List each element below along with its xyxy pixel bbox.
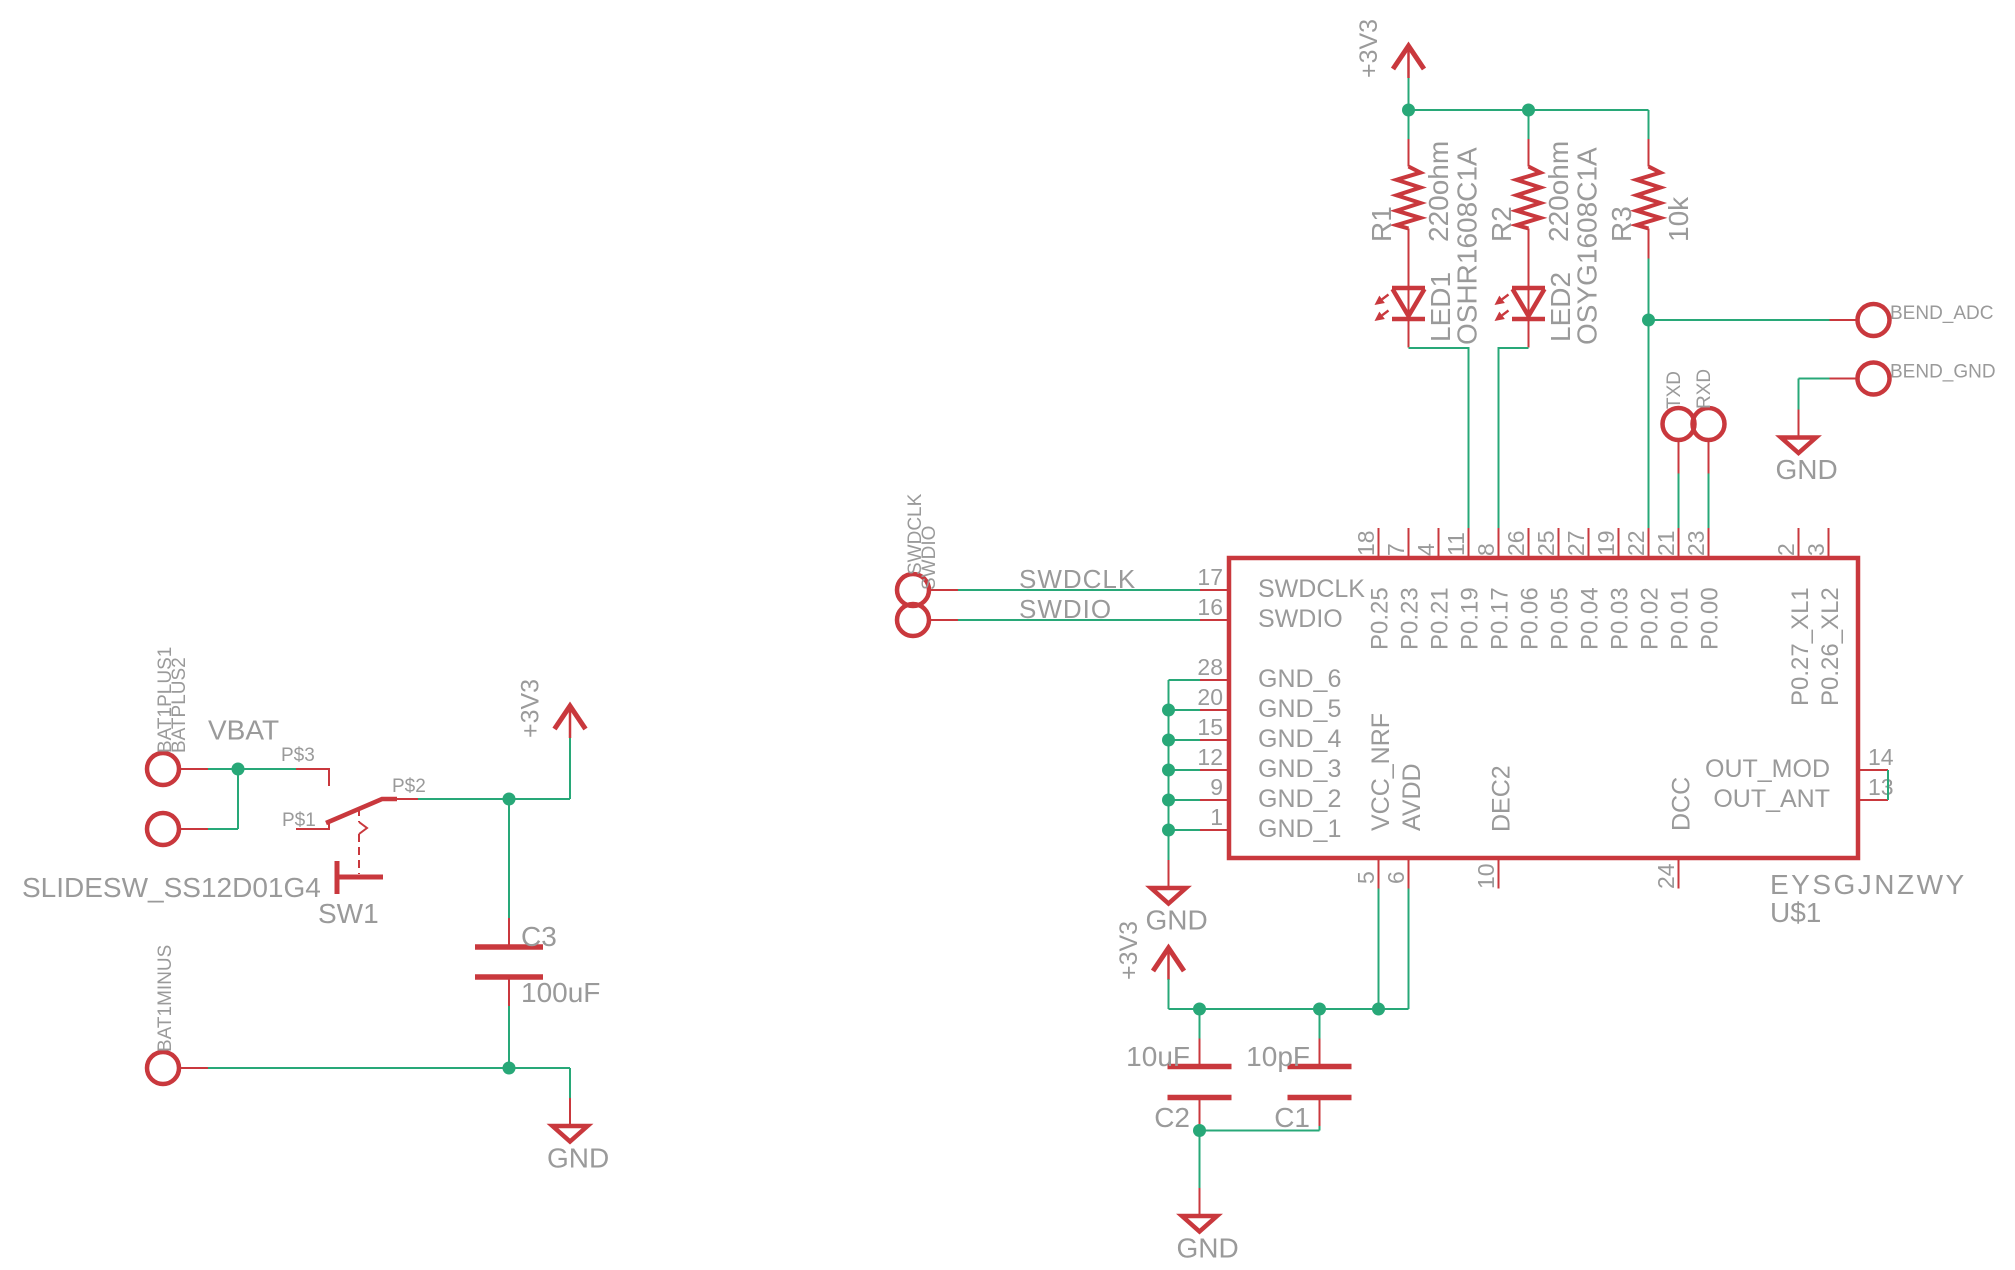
svg-text:P$3: P$3 xyxy=(281,745,315,766)
svg-text:BEND_ADC: BEND_ADC xyxy=(1890,303,1993,324)
svg-text:10pF: 10pF xyxy=(1246,1041,1310,1072)
svg-text:+3V3: +3V3 xyxy=(1115,921,1143,980)
svg-text:GND: GND xyxy=(547,1143,609,1174)
svg-text:P0.03: P0.03 xyxy=(1607,587,1634,650)
svg-text:14: 14 xyxy=(1868,744,1894,770)
svg-text:11: 11 xyxy=(1443,532,1469,556)
svg-text:P0.02: P0.02 xyxy=(1637,587,1664,650)
svg-text:P0.27_XL1: P0.27_XL1 xyxy=(1787,587,1814,706)
svg-text:P0.01: P0.01 xyxy=(1667,587,1694,650)
svg-text:18: 18 xyxy=(1353,530,1379,556)
svg-text:+3V3: +3V3 xyxy=(517,679,545,738)
svg-text:22: 22 xyxy=(1623,530,1649,556)
svg-text:GND_6: GND_6 xyxy=(1258,665,1341,693)
svg-text:P$2: P$2 xyxy=(392,776,426,797)
svg-text:P0.19: P0.19 xyxy=(1457,587,1484,650)
svg-text:P0.23: P0.23 xyxy=(1397,587,1424,650)
svg-text:28: 28 xyxy=(1197,654,1223,680)
svg-text:DCC: DCC xyxy=(1668,777,1696,831)
svg-text:SWDCLK: SWDCLK xyxy=(1258,575,1365,603)
svg-text:OUT_ANT: OUT_ANT xyxy=(1713,785,1830,813)
svg-text:TXD: TXD xyxy=(1664,371,1685,409)
svg-text:R1: R1 xyxy=(1366,206,1397,242)
svg-text:3: 3 xyxy=(1803,543,1829,556)
svg-text:17: 17 xyxy=(1197,564,1223,590)
svg-text:C3: C3 xyxy=(521,921,557,952)
svg-text:BAT1MINUS: BAT1MINUS xyxy=(155,945,176,1052)
svg-text:P0.04: P0.04 xyxy=(1577,587,1604,650)
svg-text:10uF: 10uF xyxy=(1126,1041,1190,1072)
svg-text:16: 16 xyxy=(1197,594,1223,620)
svg-text:R3: R3 xyxy=(1606,206,1637,242)
svg-text:25: 25 xyxy=(1533,530,1559,556)
svg-text:P0.25: P0.25 xyxy=(1367,587,1394,650)
svg-text:BATPLUS2: BATPLUS2 xyxy=(169,657,190,753)
svg-text:GND: GND xyxy=(1146,905,1208,936)
svg-text:GND_3: GND_3 xyxy=(1258,755,1341,783)
svg-text:GND: GND xyxy=(1776,454,1838,485)
svg-text:P0.00: P0.00 xyxy=(1697,587,1724,650)
svg-text:BEND_GND: BEND_GND xyxy=(1890,362,1996,383)
svg-text:6: 6 xyxy=(1383,871,1409,884)
svg-text:10k: 10k xyxy=(1663,196,1694,242)
svg-text:SWDIO: SWDIO xyxy=(919,526,940,590)
svg-text:100uF: 100uF xyxy=(521,977,600,1008)
svg-text:26: 26 xyxy=(1503,530,1529,556)
svg-text:10: 10 xyxy=(1473,863,1499,889)
svg-text:R2: R2 xyxy=(1486,206,1517,242)
svg-text:RXD: RXD xyxy=(1694,369,1715,409)
svg-text:12: 12 xyxy=(1197,744,1223,770)
svg-text:GND_2: GND_2 xyxy=(1258,785,1341,813)
svg-text:1: 1 xyxy=(1210,804,1223,830)
svg-text:P0.26_XL2: P0.26_XL2 xyxy=(1817,587,1844,706)
svg-text:C1: C1 xyxy=(1274,1102,1310,1133)
svg-text:SLIDESW_SS12D01G4: SLIDESW_SS12D01G4 xyxy=(22,872,321,903)
svg-text:VBAT: VBAT xyxy=(208,715,279,746)
svg-text:GND_1: GND_1 xyxy=(1258,815,1341,843)
svg-text:SWDCLK: SWDCLK xyxy=(1019,564,1136,594)
svg-text:21: 21 xyxy=(1653,530,1679,556)
svg-text:P0.05: P0.05 xyxy=(1547,587,1574,650)
svg-text:P0.06: P0.06 xyxy=(1517,587,1544,650)
svg-text:P0.21: P0.21 xyxy=(1427,587,1454,650)
svg-text:GND_4: GND_4 xyxy=(1258,725,1341,753)
svg-text:13: 13 xyxy=(1868,774,1894,800)
svg-text:2: 2 xyxy=(1773,543,1799,556)
svg-text:24: 24 xyxy=(1653,863,1679,889)
svg-text:C2: C2 xyxy=(1154,1102,1190,1133)
svg-text:SWDIO: SWDIO xyxy=(1019,594,1112,624)
svg-text:VCC_NRF: VCC_NRF xyxy=(1367,713,1395,831)
svg-text:5: 5 xyxy=(1353,871,1379,884)
svg-text:OSHR1608C1A: OSHR1608C1A xyxy=(1452,147,1483,345)
svg-text:GND_5: GND_5 xyxy=(1258,695,1341,723)
svg-text:9: 9 xyxy=(1210,774,1223,800)
svg-text:EYSGJNZWY: EYSGJNZWY xyxy=(1770,869,1967,900)
svg-text:7: 7 xyxy=(1383,543,1409,556)
svg-text:P0.17: P0.17 xyxy=(1487,587,1514,650)
svg-text:DEC2: DEC2 xyxy=(1488,765,1516,832)
svg-text:+3V3: +3V3 xyxy=(1355,19,1383,78)
svg-text:220ohm: 220ohm xyxy=(1543,141,1574,242)
svg-text:15: 15 xyxy=(1197,714,1223,740)
svg-text:U$1: U$1 xyxy=(1770,897,1821,928)
svg-text:27: 27 xyxy=(1563,530,1589,556)
svg-text:4: 4 xyxy=(1413,543,1439,556)
svg-text:20: 20 xyxy=(1197,684,1223,710)
svg-text:23: 23 xyxy=(1683,530,1709,556)
svg-text:8: 8 xyxy=(1473,543,1499,556)
svg-text:19: 19 xyxy=(1593,530,1619,556)
svg-text:220ohm: 220ohm xyxy=(1423,141,1454,242)
svg-text:AVDD: AVDD xyxy=(1398,763,1426,831)
svg-text:SW1: SW1 xyxy=(318,898,379,929)
svg-text:OUT_MOD: OUT_MOD xyxy=(1705,755,1830,783)
svg-text:P$1: P$1 xyxy=(282,810,316,831)
svg-text:OSYG1608C1A: OSYG1608C1A xyxy=(1572,147,1603,345)
svg-text:SWDIO: SWDIO xyxy=(1258,605,1343,633)
svg-text:GND: GND xyxy=(1177,1233,1239,1264)
